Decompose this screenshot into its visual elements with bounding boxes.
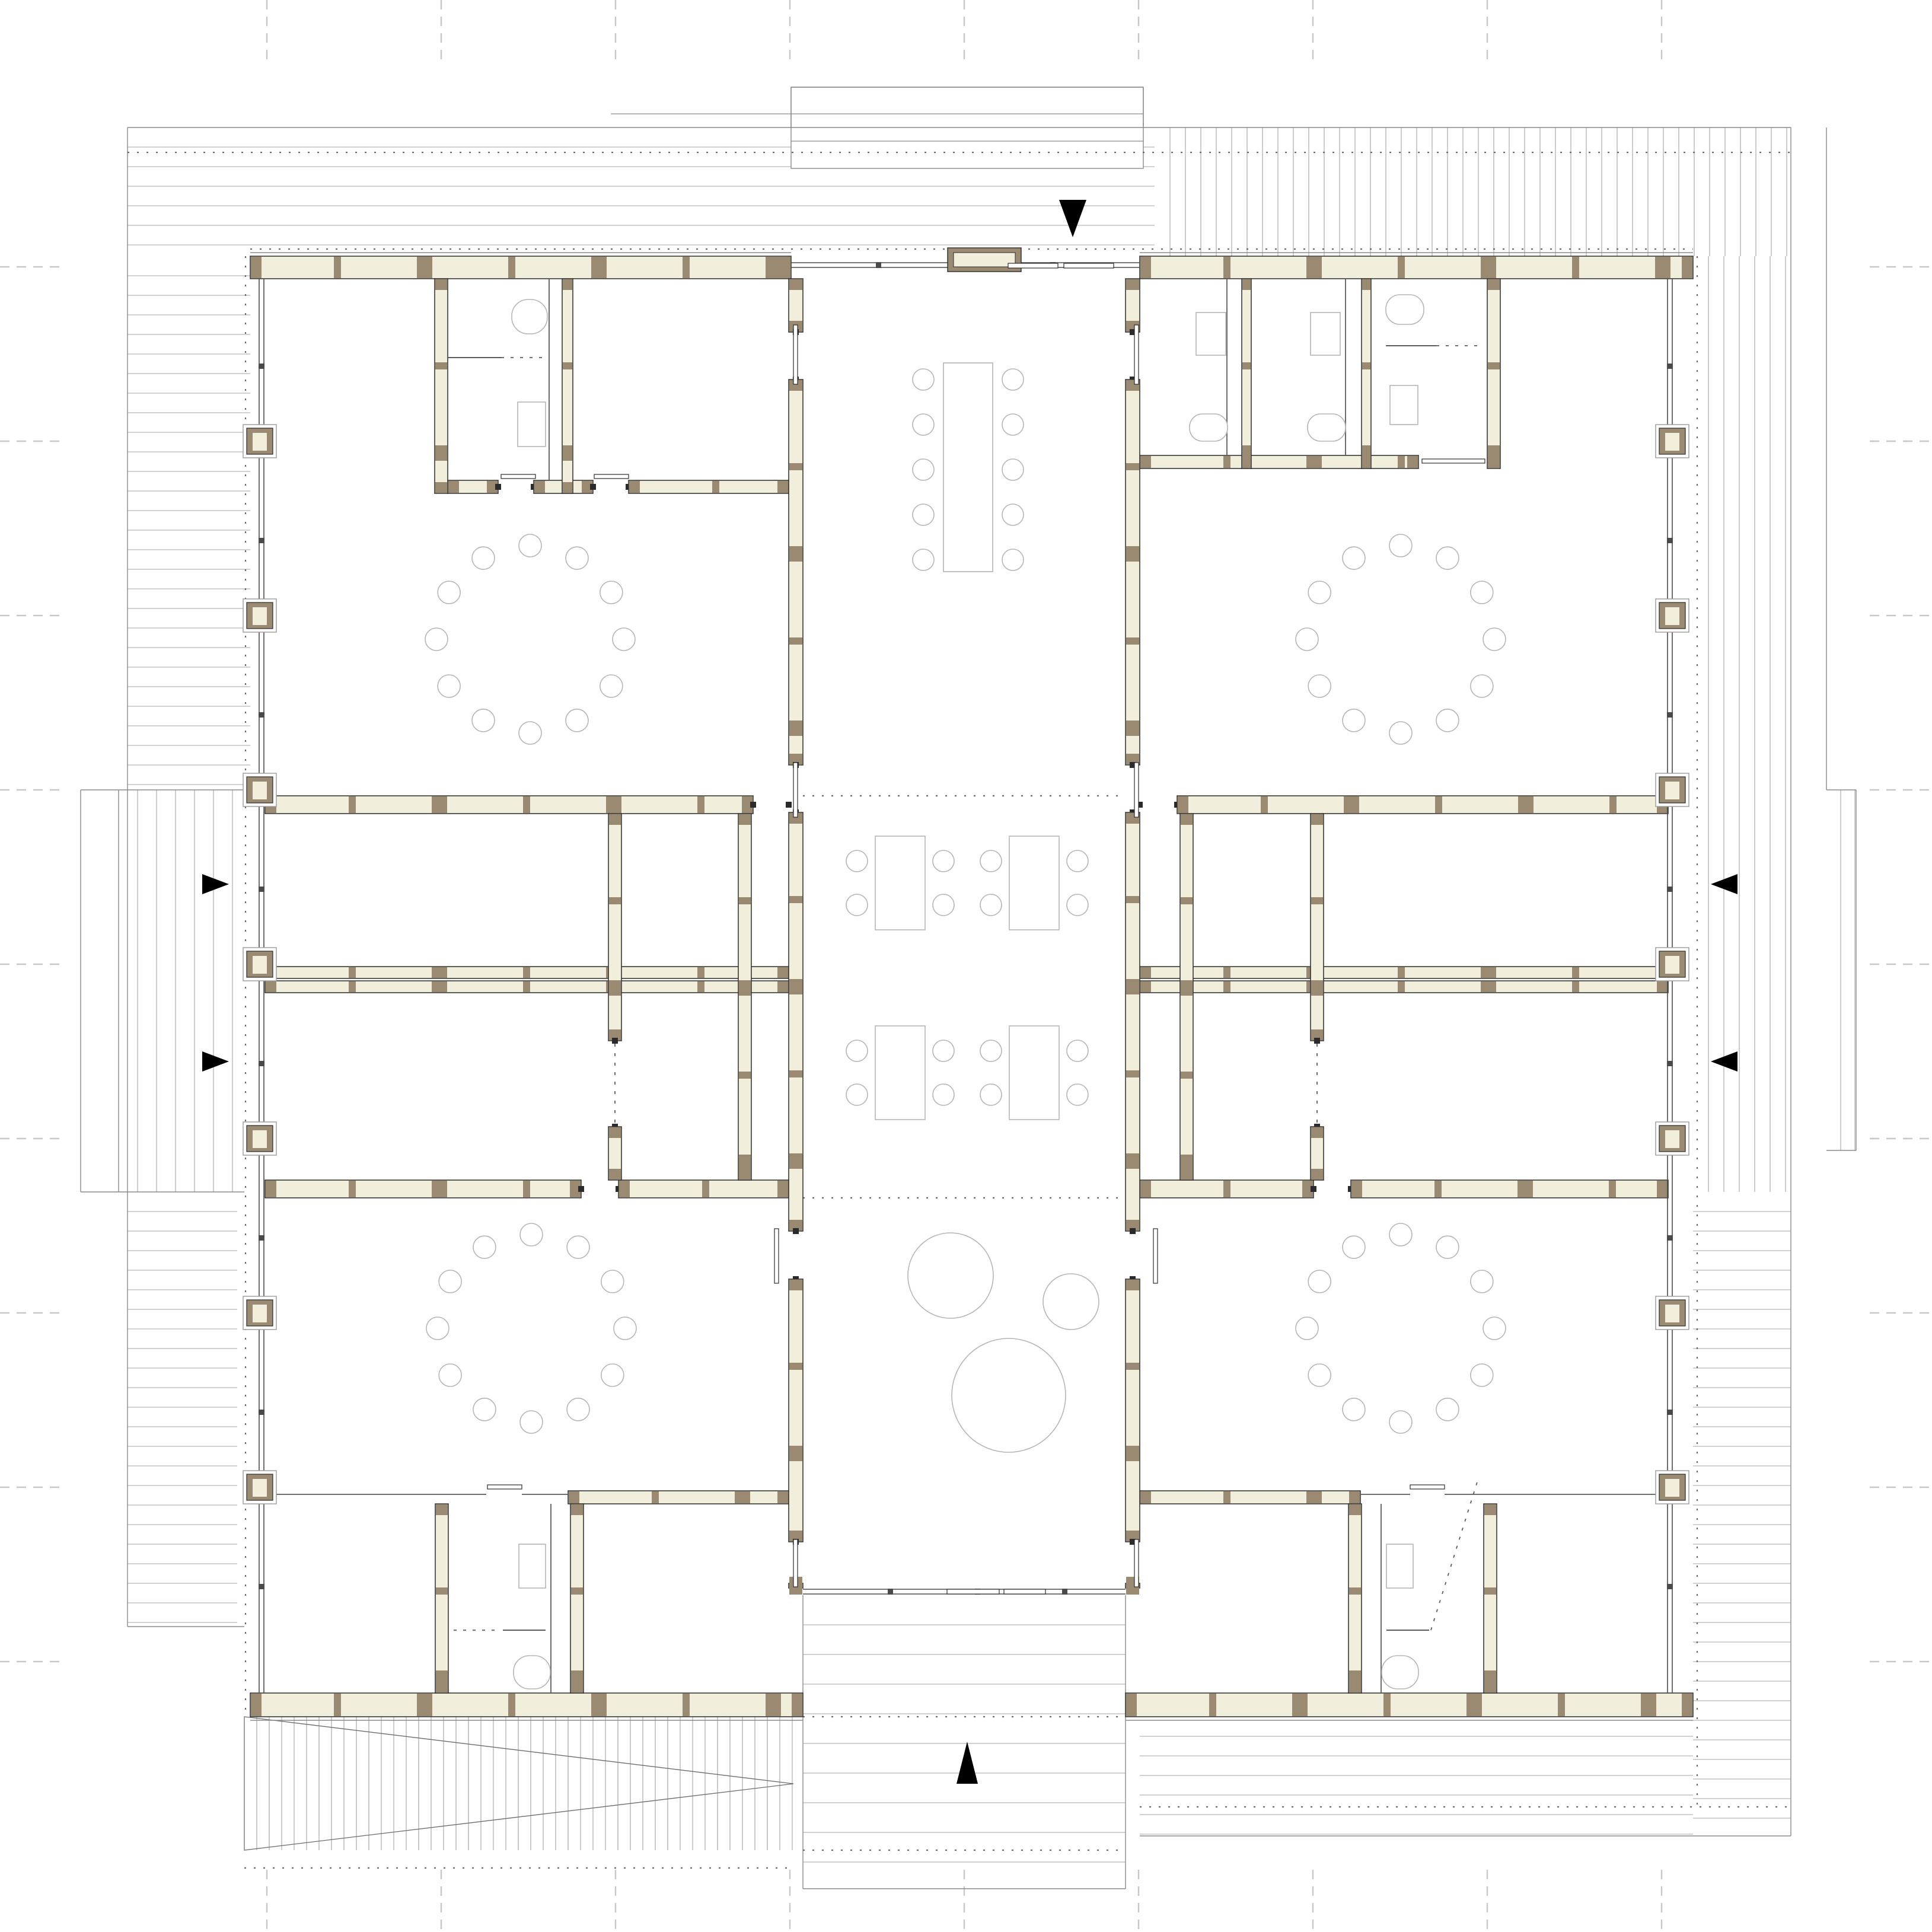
chair bbox=[567, 1236, 589, 1258]
chair bbox=[1002, 549, 1024, 570]
wall-band-horizontal bbox=[1140, 967, 1668, 978]
door-leaf bbox=[1004, 1589, 1045, 1594]
chair bbox=[473, 1398, 496, 1421]
facade-post bbox=[1656, 425, 1689, 458]
chair bbox=[913, 414, 934, 435]
chair bbox=[519, 722, 541, 744]
chair bbox=[1471, 581, 1493, 604]
wc-toilet-icon bbox=[514, 1656, 550, 1689]
chair bbox=[439, 1270, 461, 1293]
chair bbox=[933, 894, 954, 916]
facade-post bbox=[243, 425, 276, 458]
chair bbox=[520, 1223, 543, 1246]
chair bbox=[1389, 1411, 1412, 1433]
chair bbox=[1436, 1398, 1459, 1421]
wall-band-horizontal bbox=[1140, 256, 1693, 279]
wall-band-vertical bbox=[570, 1504, 584, 1693]
play-circle bbox=[952, 1338, 1066, 1452]
chair bbox=[1308, 581, 1331, 604]
chair bbox=[439, 1364, 461, 1386]
door-leaf bbox=[1008, 263, 1058, 268]
chair bbox=[1436, 1236, 1459, 1258]
play-circle bbox=[908, 1233, 993, 1318]
wall-band-vertical bbox=[1348, 1504, 1362, 1693]
chair bbox=[1002, 369, 1024, 390]
wc-toilet-icon bbox=[1190, 414, 1228, 441]
chair bbox=[1436, 547, 1459, 569]
chair bbox=[1389, 1223, 1412, 1246]
play-circle bbox=[1043, 1274, 1099, 1330]
chair bbox=[1343, 1398, 1365, 1421]
door-leaf bbox=[774, 1229, 779, 1283]
wall-band-vertical bbox=[1487, 279, 1500, 468]
chair bbox=[613, 628, 635, 651]
wc-toilet-icon bbox=[1386, 295, 1424, 324]
chair bbox=[1067, 1084, 1088, 1105]
chair bbox=[425, 628, 448, 651]
table bbox=[875, 1026, 925, 1120]
door-leaf bbox=[793, 1539, 798, 1587]
door-leaf bbox=[487, 1485, 522, 1489]
wall-band-horizontal bbox=[568, 1491, 789, 1504]
washbasin-icon bbox=[1196, 313, 1226, 355]
wall-band-vertical bbox=[789, 279, 803, 1595]
washbasin-icon bbox=[518, 402, 546, 447]
chair bbox=[1002, 504, 1024, 525]
chair bbox=[601, 1364, 624, 1386]
chair bbox=[614, 1317, 636, 1340]
chair bbox=[980, 1084, 1002, 1105]
wall-band-vertical bbox=[738, 814, 751, 1180]
wall-band-horizontal bbox=[265, 1180, 789, 1198]
door-leaf bbox=[1410, 1485, 1445, 1489]
facade-post bbox=[1656, 948, 1689, 981]
chair bbox=[1067, 894, 1088, 916]
chair bbox=[473, 1236, 496, 1258]
chair bbox=[846, 1084, 868, 1105]
chair bbox=[980, 894, 1002, 916]
chair bbox=[1343, 547, 1365, 569]
door-leaf bbox=[793, 763, 798, 817]
chair bbox=[1308, 675, 1331, 697]
facade-post bbox=[1656, 1296, 1689, 1330]
chair bbox=[600, 581, 623, 604]
door-leaf bbox=[501, 474, 535, 479]
chair bbox=[1002, 414, 1024, 435]
chair bbox=[1471, 1270, 1493, 1293]
chair bbox=[913, 369, 934, 390]
chair bbox=[1296, 628, 1318, 651]
facade-post bbox=[243, 1296, 276, 1330]
wall-band-vertical bbox=[435, 1504, 448, 1693]
wall-band-horizontal bbox=[1137, 796, 1668, 814]
wall-band-vertical bbox=[1126, 279, 1140, 1595]
door-leaf bbox=[1153, 1229, 1158, 1283]
chair bbox=[438, 675, 460, 697]
chair bbox=[1308, 1364, 1331, 1386]
facade-post bbox=[243, 599, 276, 632]
facade-post bbox=[1656, 1122, 1689, 1155]
wc-toilet-icon bbox=[1382, 1656, 1418, 1689]
facade-post bbox=[243, 948, 276, 981]
wc-toilet-icon bbox=[512, 299, 547, 334]
chair bbox=[1343, 1236, 1365, 1258]
facade-post bbox=[1656, 599, 1689, 632]
chair bbox=[438, 581, 460, 604]
wc-toilet-icon bbox=[1308, 414, 1346, 441]
chair bbox=[600, 675, 623, 697]
chair bbox=[1308, 1270, 1331, 1293]
wall-band-horizontal bbox=[1140, 1180, 1668, 1198]
wall-band-vertical bbox=[1362, 279, 1371, 468]
chair bbox=[1483, 628, 1506, 651]
chair bbox=[980, 1040, 1002, 1061]
chair bbox=[913, 504, 934, 525]
washbasin-icon bbox=[1311, 313, 1340, 355]
wall-band-vertical bbox=[1180, 814, 1193, 1180]
washbasin-icon bbox=[1390, 385, 1418, 425]
wall-band-vertical bbox=[435, 279, 448, 493]
chair bbox=[1296, 1317, 1318, 1340]
chair bbox=[472, 709, 495, 732]
wall-band-horizontal bbox=[265, 796, 792, 814]
floor-plan-canvas bbox=[0, 0, 1932, 1932]
door-leaf bbox=[947, 1589, 999, 1594]
chair bbox=[1343, 709, 1365, 732]
facade-post bbox=[243, 1122, 276, 1155]
wall-band-vertical bbox=[1242, 279, 1251, 468]
chair bbox=[1389, 722, 1412, 744]
door-leaf bbox=[1064, 263, 1114, 268]
chair bbox=[913, 549, 934, 570]
chair bbox=[1483, 1317, 1506, 1340]
wall-band-vertical bbox=[1484, 1504, 1497, 1693]
table bbox=[1009, 1026, 1059, 1120]
wall-band-horizontal bbox=[1126, 1693, 1693, 1717]
chair bbox=[933, 850, 954, 872]
wall-band-horizontal bbox=[1140, 455, 1418, 468]
door-leaf bbox=[793, 325, 798, 384]
floor-plan-page bbox=[0, 0, 1932, 1932]
chair bbox=[426, 1317, 449, 1340]
wall-band-horizontal bbox=[250, 256, 791, 279]
wall-band-horizontal bbox=[250, 1693, 803, 1717]
chair bbox=[520, 1411, 543, 1433]
chair bbox=[913, 459, 934, 480]
chair bbox=[519, 534, 541, 557]
chair bbox=[1067, 1040, 1088, 1061]
wall-band-horizontal bbox=[265, 967, 789, 978]
door-leaf bbox=[1134, 325, 1139, 384]
table bbox=[875, 836, 925, 930]
wall-band-horizontal bbox=[1140, 981, 1668, 993]
deck-north-east bbox=[1170, 127, 1787, 256]
chair bbox=[1471, 1364, 1493, 1386]
wall-band-horizontal bbox=[265, 981, 789, 993]
chair bbox=[1471, 675, 1493, 697]
door-leaf bbox=[594, 474, 629, 479]
chair bbox=[846, 894, 868, 916]
chair bbox=[1002, 459, 1024, 480]
wall-band-horizontal bbox=[1140, 1491, 1360, 1504]
washbasin-icon bbox=[1386, 1544, 1413, 1588]
chair bbox=[567, 1398, 589, 1421]
table bbox=[943, 363, 993, 572]
door-leaf bbox=[1134, 1539, 1139, 1587]
chair bbox=[566, 709, 588, 732]
facade-post bbox=[243, 773, 276, 806]
facade-post bbox=[1656, 773, 1689, 806]
table bbox=[1009, 836, 1059, 930]
washbasin-icon bbox=[519, 1544, 546, 1588]
chair bbox=[980, 850, 1002, 872]
chair bbox=[933, 1040, 954, 1061]
chair bbox=[566, 547, 588, 569]
chair bbox=[846, 850, 868, 872]
chair bbox=[1067, 850, 1088, 872]
chair bbox=[601, 1270, 624, 1293]
wall-band-vertical bbox=[562, 279, 573, 493]
chair bbox=[472, 547, 495, 569]
facade-post bbox=[243, 1471, 276, 1504]
chair bbox=[933, 1084, 954, 1105]
door-leaf bbox=[1422, 459, 1485, 463]
chair bbox=[846, 1040, 868, 1061]
chair bbox=[1389, 534, 1412, 557]
door-leaf bbox=[1134, 763, 1139, 817]
facade-post bbox=[1656, 1471, 1689, 1504]
chair bbox=[1436, 709, 1459, 732]
